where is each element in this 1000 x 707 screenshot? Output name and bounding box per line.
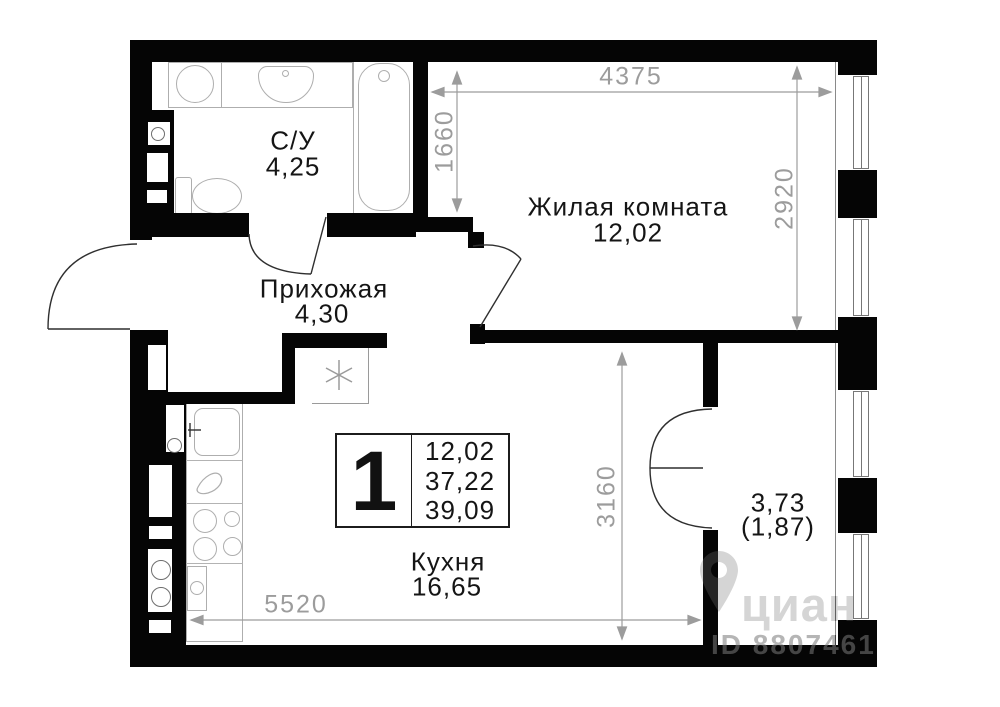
- room-area-hallway: 4,30: [295, 299, 350, 330]
- living-door-jamb-top: [468, 232, 484, 248]
- counter-divider: [186, 563, 243, 564]
- area-without-balcony-value: 37,22: [425, 468, 508, 494]
- bathroom-door-arc: [249, 234, 311, 274]
- dim-label-bottom: 5520: [264, 591, 328, 620]
- window-pier: [838, 620, 877, 667]
- kitchen-sink: [194, 408, 240, 456]
- window-pier: [838, 478, 877, 533]
- pipe-symbol: [167, 438, 182, 453]
- rooms-count: 1: [351, 439, 398, 523]
- stove-burner: [223, 537, 242, 556]
- interior-wall-face: [835, 62, 836, 645]
- pipe-symbol: [151, 560, 171, 580]
- toilet-bowl: [192, 178, 242, 214]
- balcony-partition-bottom: [703, 530, 718, 645]
- wall-top: [130, 40, 877, 62]
- dim-label-living-right: 2920: [771, 166, 800, 230]
- room-area-balcony: (1,87): [741, 512, 815, 543]
- stove-burner: [224, 511, 240, 527]
- bathroom-wall-right: [327, 213, 416, 237]
- bathroom-door-leaf: [311, 217, 326, 274]
- bathroom-living-wall: [413, 40, 428, 232]
- entrance-door-arc: [48, 244, 137, 329]
- counter-divider: [186, 460, 243, 461]
- bathtub-inner: [358, 63, 410, 211]
- room-area-kitchen: 16,65: [412, 572, 482, 603]
- dim-label-top: 4375: [599, 63, 663, 92]
- window-pier: [838, 317, 877, 390]
- legend-rooms-count-cell: 1: [337, 435, 412, 526]
- window-glazing: [861, 391, 862, 477]
- window-glazing: [861, 76, 862, 169]
- shaft-opening: [149, 526, 172, 539]
- shaft-opening: [148, 345, 166, 390]
- dim-label-living-left: 1660: [431, 109, 460, 173]
- balcony-door-arc-top: [650, 409, 712, 468]
- room-area-living: 12,02: [593, 218, 663, 249]
- closet: [312, 348, 369, 404]
- legend-box: 1 12,02 37,22 39,09: [335, 433, 510, 528]
- window-glazing: [861, 219, 862, 316]
- legend-areas-cell: 12,02 37,22 39,09: [412, 435, 508, 526]
- window-glazing: [861, 534, 862, 619]
- balcony-door-arc-bottom: [650, 468, 712, 528]
- bathroom-wall-left: [130, 213, 249, 237]
- washing-machine-drum: [176, 65, 214, 103]
- shaft-opening: [147, 190, 167, 203]
- room-area-bathroom: 4,25: [266, 152, 321, 183]
- dim-label-kitchen-right: 3160: [593, 464, 622, 528]
- counter-divider: [186, 503, 243, 504]
- floor-plan: С/У 4,25 Жилая комната 12,02 Прихожая 4,…: [0, 0, 1000, 707]
- living-bottom-wall: [472, 330, 838, 343]
- toilet-tank: [175, 177, 192, 215]
- bathtub-drain: [378, 70, 390, 82]
- pipe-symbol: [151, 127, 165, 141]
- sink-tap: [282, 70, 289, 77]
- shaft-opening: [149, 620, 171, 633]
- shaft-opening: [147, 153, 168, 182]
- balcony-partition-top: [703, 343, 718, 407]
- shaft-opening: [149, 465, 172, 517]
- stove-burner: [193, 509, 217, 533]
- window-pier: [838, 40, 877, 75]
- total-area-value: 39,09: [425, 497, 508, 523]
- living-door-leaf: [480, 259, 521, 327]
- wall-bottom: [130, 645, 877, 667]
- hall-bottom-wall: [130, 392, 295, 404]
- living-area-value: 12,02: [425, 438, 508, 464]
- window-pier: [838, 170, 877, 218]
- stove-burner: [193, 537, 217, 561]
- water-heater-dial: [190, 581, 204, 595]
- closet-wall-top: [282, 333, 387, 348]
- pipe-symbol: [151, 587, 171, 607]
